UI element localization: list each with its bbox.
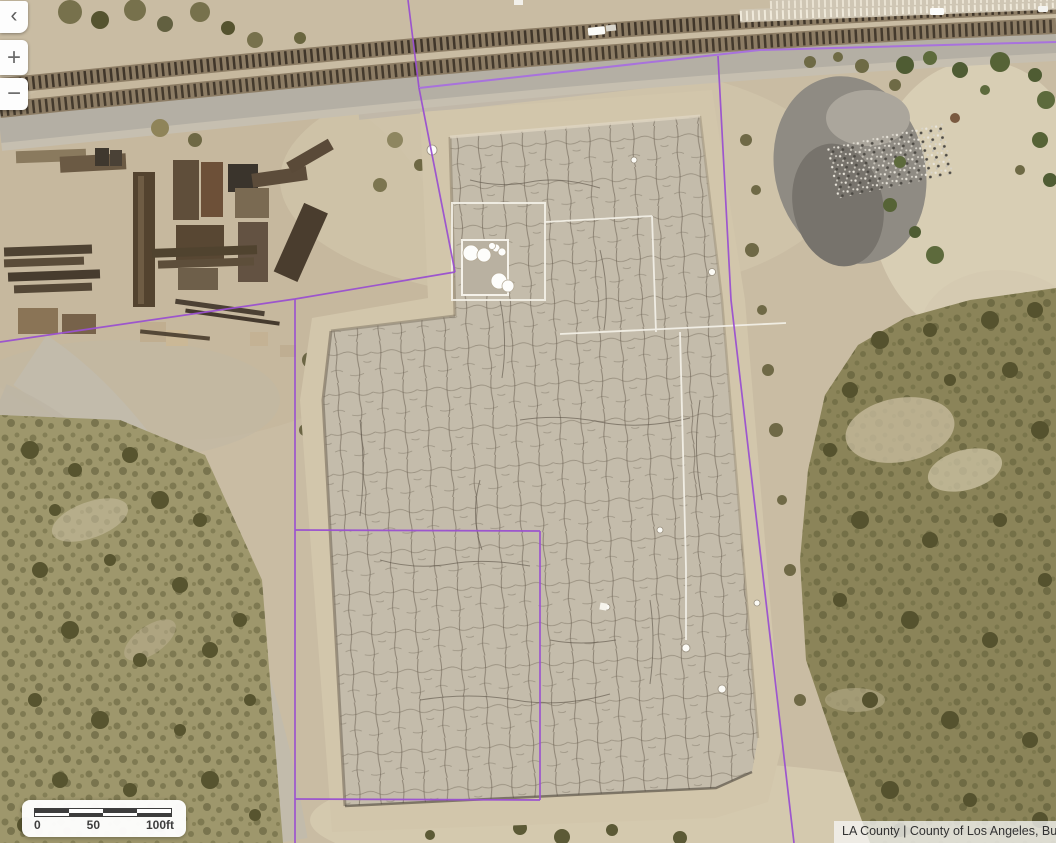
scale-label-100ft: 100ft: [146, 818, 174, 832]
scale-bar-segments: [34, 808, 172, 817]
map-attribution: LA County | County of Los Angeles, Bu: [834, 821, 1056, 843]
collapse-panel-button[interactable]: ‹: [0, 1, 28, 33]
chevron-left-icon: ‹: [11, 5, 18, 26]
map-app-window: ‹ I want to... + − 0 50 100ft LA County …: [0, 0, 1056, 843]
scale-label-0: 0: [34, 818, 41, 832]
minus-icon: −: [7, 82, 21, 106]
scale-label-50: 50: [87, 818, 100, 832]
aerial-map-canvas[interactable]: [0, 0, 1056, 843]
zoom-out-button[interactable]: −: [0, 78, 28, 110]
scale-bar: 0 50 100ft: [22, 800, 186, 837]
zoom-in-button[interactable]: +: [0, 40, 28, 75]
plus-icon: +: [7, 46, 21, 70]
